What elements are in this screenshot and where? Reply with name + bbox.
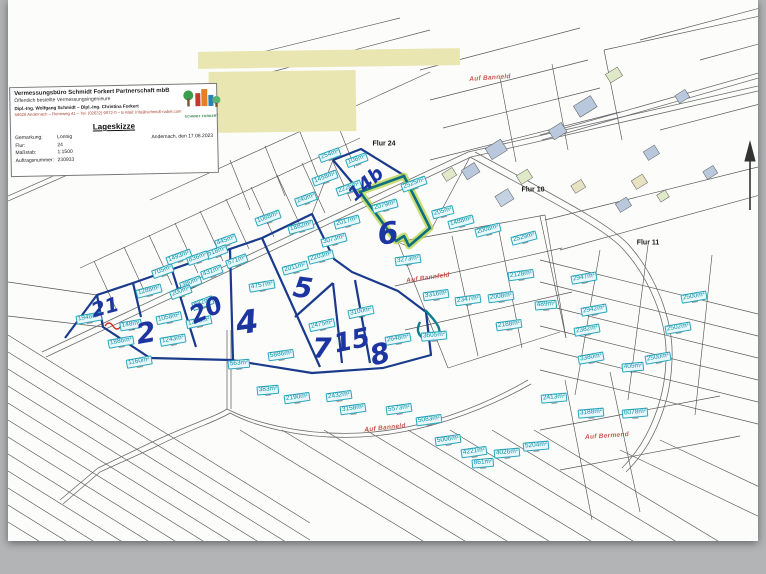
- field-value: 24: [57, 142, 63, 148]
- title-block-fields: Gemarkung: Lonnig Flur: 24 Maßstab: 1:15…: [15, 134, 74, 165]
- sticky-note: [198, 48, 460, 69]
- title-block: Vermessungsbüro Schmidt Forkert Partners…: [9, 83, 219, 177]
- date-line: Andernach, den 17.08.2023: [151, 133, 213, 162]
- sticky-note: [209, 70, 357, 133]
- red-annotation-scribble: [105, 323, 137, 329]
- north-arrow-icon: [745, 142, 755, 210]
- highlighted-parcel-6: [360, 176, 439, 339]
- company-logo: SCHMIDT FORKERT: [181, 87, 222, 118]
- field-label: Auftragsnummer:: [16, 157, 58, 164]
- field-value: 230933: [58, 156, 75, 162]
- field-label: Gemarkung:: [15, 134, 57, 141]
- field-flur: Flur: 24: [15, 141, 74, 148]
- map-svg: [8, 0, 758, 541]
- field-value: 1:1500: [57, 149, 72, 155]
- field-auftragsnummer: Auftragsnummer: 230933: [16, 156, 75, 163]
- field-label: Flur:: [15, 142, 57, 149]
- field-gemarkung: Gemarkung: Lonnig: [15, 134, 74, 141]
- field-massstab: Maßstab: 1:1500: [15, 149, 74, 156]
- field-value: Lonnig: [57, 134, 72, 140]
- buildings: [442, 67, 718, 212]
- screenshot-root: { "titleblock": { "company": "Vermessung…: [0, 0, 766, 574]
- field-label: Maßstab:: [15, 149, 57, 156]
- logo-caption: SCHMIDT FORKERT: [182, 114, 222, 119]
- scan-page: Vermessungsbüro Schmidt Forkert Partners…: [8, 0, 758, 541]
- title-block-text: Vermessungsbüro Schmidt Forkert Partners…: [14, 88, 181, 121]
- logo-graphic-icon: [181, 87, 221, 110]
